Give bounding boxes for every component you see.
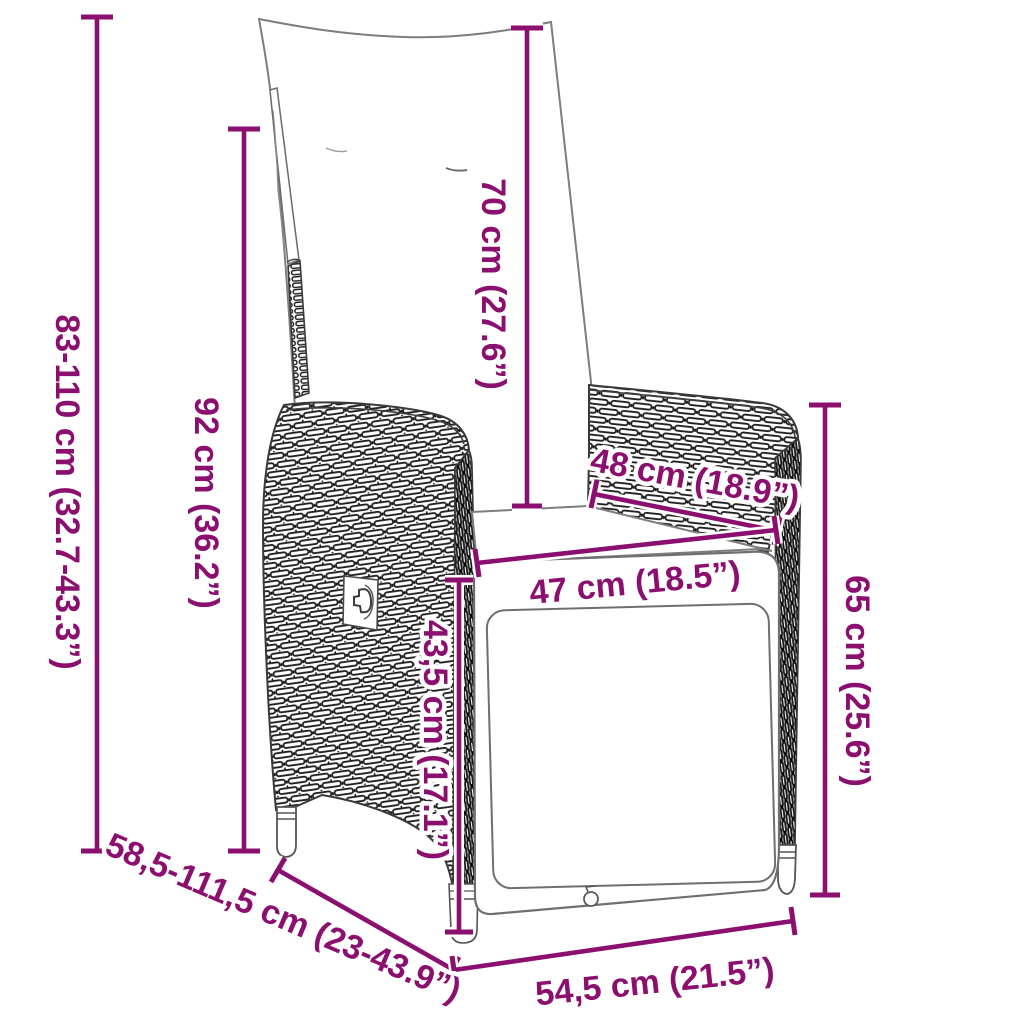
svg-text:43,5 cm (17.1”): 43,5 cm (17.1”) — [416, 620, 454, 860]
svg-text:65 cm (25.6”): 65 cm (25.6”) — [838, 575, 876, 787]
svg-text:83-110 cm (32.7-43.3”): 83-110 cm (32.7-43.3”) — [48, 314, 86, 669]
svg-text:92 cm (36.2”): 92 cm (36.2”) — [187, 397, 225, 609]
svg-text:70 cm (27.6”): 70 cm (27.6”) — [474, 178, 512, 390]
